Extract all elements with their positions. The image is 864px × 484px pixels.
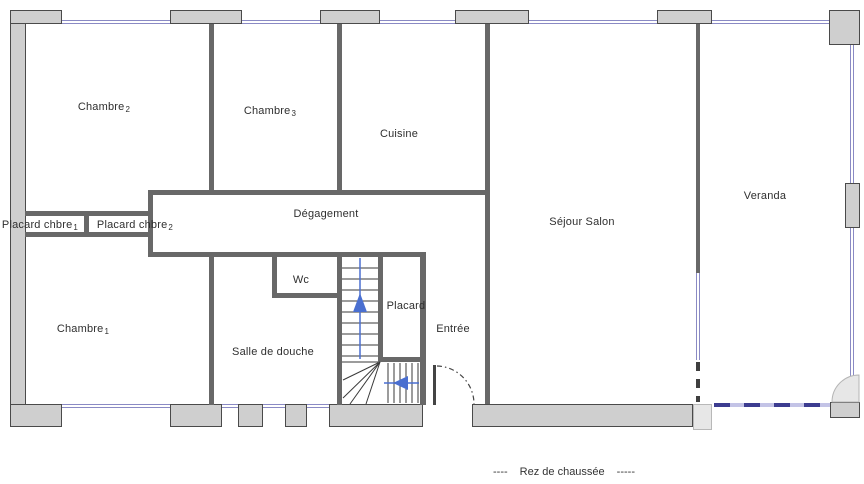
wall-placard-right: [420, 257, 426, 405]
stairs-straight-flight: [342, 268, 378, 362]
wall-placard-bottom: [378, 357, 426, 362]
wall-right-pillar: [845, 183, 860, 228]
wall-top-pillar-2: [320, 10, 380, 24]
wall-chambre3-cuisine: [337, 24, 342, 190]
wall-top-pillar-1: [170, 10, 242, 24]
wall-top-pillar-4: [657, 10, 712, 24]
entrance-door-leaf: [433, 365, 436, 405]
label-chambre3: Chambre3: [244, 105, 296, 118]
wall-chambre2-chambre3: [209, 24, 214, 190]
wall-sejour-veranda: [696, 24, 700, 273]
window-sejour-veranda: [696, 273, 700, 360]
caption-left-dashes: ----: [493, 466, 508, 478]
label-cuisine: Cuisine: [380, 128, 418, 140]
caption-right-dashes: -----: [617, 466, 635, 478]
wall-degagement-bottom: [148, 252, 426, 257]
label-chambre1: Chambre1: [57, 323, 109, 336]
stairs-lower-flight: [388, 363, 418, 403]
wall-bottom-pier-1: [170, 404, 222, 427]
wall-bottom-pier-2: [238, 404, 263, 427]
stairs-and-doors-drawing: [0, 0, 864, 484]
wall-top-corner-right: [829, 10, 860, 45]
label-veranda: Veranda: [744, 190, 786, 202]
wall-bottom-corner-left: [10, 404, 62, 427]
wall-bottom-sejour: [472, 404, 693, 427]
wall-bottom-corner-right: [830, 402, 860, 418]
wall-top-pillar-3: [455, 10, 529, 24]
wall-bottom-stairs: [329, 404, 423, 427]
veranda-sliding-bay: [714, 403, 830, 407]
label-placard-chbre1: Placard chbre1: [2, 219, 78, 232]
stairs-winders: [343, 362, 380, 404]
caption-text: Rez de chaussée: [520, 466, 605, 478]
wall-stairs-placard: [378, 257, 383, 362]
wall-wc-bottom: [272, 293, 342, 298]
label-placard-chbre2: Placard chbre2: [97, 219, 173, 232]
wall-stairs-left: [337, 257, 342, 405]
label-salle-de-douche: Salle de douche: [232, 346, 314, 358]
window-bottom-chambre1: [62, 404, 170, 408]
window-bottom-douche-1: [222, 404, 238, 408]
veranda-door-swing: [832, 375, 859, 402]
wall-bottom-veranda-pier: [693, 404, 712, 430]
floor-caption: ----Rez de chaussée-----: [487, 466, 641, 478]
label-placard: Placard: [387, 300, 426, 312]
label-wc: Wc: [293, 274, 309, 286]
wall-placards-divider: [84, 211, 89, 237]
wall-chambre1-douche: [209, 257, 214, 405]
floor-plan: Chambre2 Chambre3 Cuisine Séjour Salon V…: [0, 0, 864, 484]
wall-top-corner-left: [10, 10, 62, 24]
entrance-door-arc: [437, 366, 474, 404]
wall-wc-left: [272, 257, 277, 298]
stairs-left-arrow-icon: [384, 376, 419, 390]
label-sejour-salon: Séjour Salon: [549, 216, 614, 228]
stairs-up-arrow-icon: [353, 258, 367, 359]
door-sejour-veranda-dashed: [696, 362, 700, 402]
wall-degagement-top: [148, 190, 490, 195]
label-entree: Entrée: [436, 323, 470, 335]
wall-bottom-pier-3: [285, 404, 307, 427]
label-degagement: Dégagement: [294, 208, 359, 220]
window-bottom-douche-3: [307, 404, 329, 408]
window-bottom-douche-2: [263, 404, 285, 408]
wall-sejour-left: [485, 24, 490, 404]
label-chambre2: Chambre2: [78, 101, 130, 114]
